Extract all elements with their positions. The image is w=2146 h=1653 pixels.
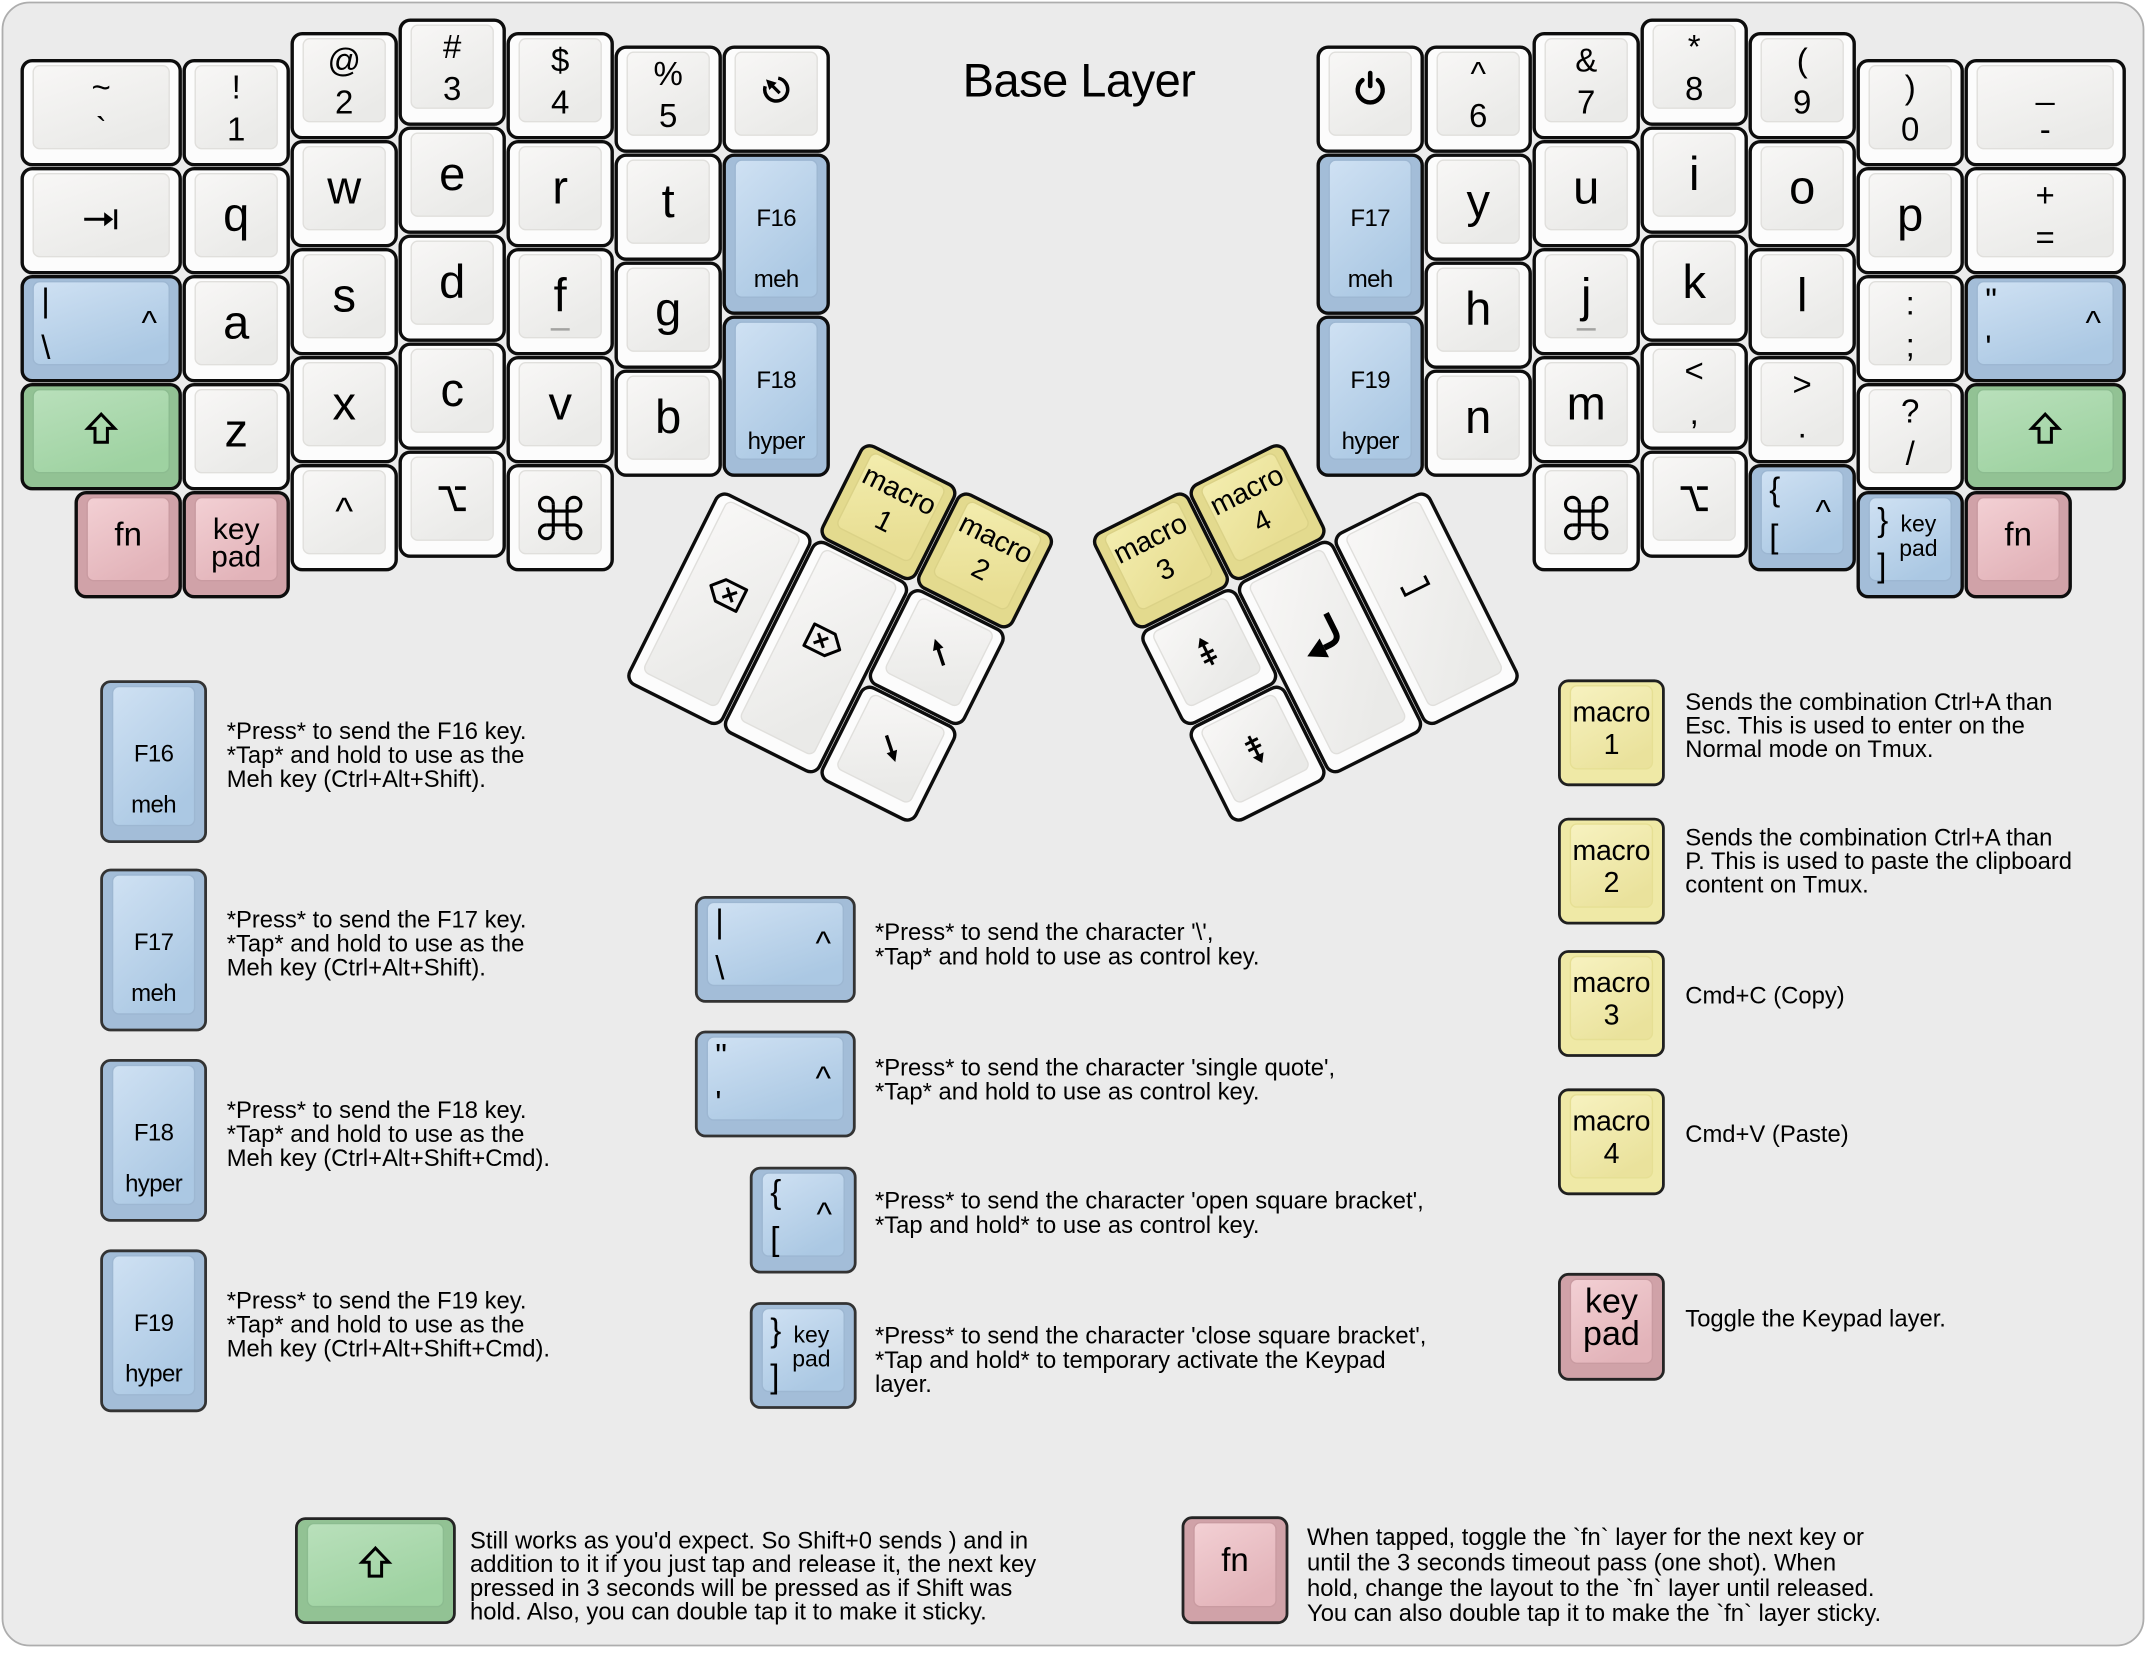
svg-text:): )	[1905, 69, 1916, 106]
svg-text:t: t	[662, 174, 675, 227]
svg-text:F17: F17	[1350, 205, 1390, 232]
svg-text:u: u	[1573, 161, 1599, 214]
svg-text:fn: fn	[2004, 515, 2032, 552]
svg-text:*Tap* and hold to use as the: *Tap* and hold to use as the	[227, 931, 525, 958]
svg-text:1: 1	[227, 110, 245, 147]
svg-text:1: 1	[1604, 729, 1620, 761]
svg-text:]: ]	[770, 1357, 779, 1394]
svg-text:meh: meh	[1348, 266, 1393, 293]
svg-text:[: [	[770, 1220, 779, 1257]
svg-text:Normal mode on Tmux.: Normal mode on Tmux.	[1685, 736, 1933, 763]
svg-text:macro: macro	[1573, 967, 1651, 999]
svg-text:e: e	[439, 147, 465, 200]
svg-text:Meh key (Ctrl+Alt+Shift+Cmd).: Meh key (Ctrl+Alt+Shift+Cmd).	[227, 1335, 550, 1362]
svg-text:=: =	[2036, 218, 2055, 255]
svg-text:d: d	[439, 255, 465, 308]
svg-text:pad: pad	[211, 541, 261, 574]
svg-text:macro: macro	[1573, 835, 1651, 867]
svg-text:4: 4	[551, 83, 569, 120]
svg-text:^: ^	[2085, 304, 2101, 341]
svg-text:meh: meh	[754, 266, 799, 293]
svg-text:^: ^	[1815, 493, 1831, 530]
svg-text:c: c	[440, 363, 464, 416]
svg-text:2: 2	[335, 83, 353, 120]
svg-text:*Press* to send the character: *Press* to send the character 'close squ…	[875, 1322, 1426, 1349]
svg-text:6: 6	[1469, 97, 1487, 134]
svg-text:9: 9	[1793, 83, 1811, 120]
svg-text:>: >	[1793, 366, 1812, 403]
svg-text:&: &	[1575, 42, 1597, 79]
svg-text:pad: pad	[792, 1346, 830, 1372]
svg-text:q: q	[223, 188, 249, 241]
svg-text:": "	[1985, 282, 1997, 319]
svg-text:2: 2	[1604, 867, 1620, 899]
svg-text:F18: F18	[756, 367, 796, 394]
svg-text:F19: F19	[1350, 367, 1390, 394]
svg-text:h: h	[1465, 282, 1491, 335]
svg-text:b: b	[655, 390, 681, 443]
svg-text:key: key	[794, 1322, 830, 1348]
svg-text:*Tap* and hold to use as contr: *Tap* and hold to use as control key.	[875, 943, 1260, 970]
svg-text:hold. Also, you can double tap: hold. Also, you can double tap it to mak…	[470, 1598, 987, 1625]
svg-text:g: g	[655, 282, 681, 335]
svg-text:!: !	[232, 69, 241, 106]
svg-text:F19: F19	[134, 1310, 174, 1337]
svg-text:Base Layer: Base Layer	[963, 54, 1196, 107]
svg-text:|: |	[41, 282, 50, 319]
svg-text:%: %	[654, 55, 683, 92]
svg-text:w: w	[326, 161, 362, 214]
svg-text:*Press* to send the character: *Press* to send the character 'open squa…	[875, 1188, 1424, 1215]
svg-text:|: |	[715, 902, 724, 939]
svg-text:[: [	[1769, 518, 1778, 555]
svg-text:Meh key (Ctrl+Alt+Shift+Cmd).: Meh key (Ctrl+Alt+Shift+Cmd).	[227, 1145, 550, 1172]
svg-text:7: 7	[1577, 83, 1595, 120]
svg-text:#: #	[443, 28, 462, 65]
svg-text:z: z	[224, 404, 248, 457]
svg-text:layer.: layer.	[875, 1371, 932, 1398]
svg-text:': '	[715, 1084, 721, 1121]
svg-text:?: ?	[1901, 393, 1919, 430]
svg-text:F16: F16	[134, 741, 174, 768]
svg-text:a: a	[223, 296, 250, 349]
svg-text:F16: F16	[756, 205, 796, 232]
svg-text:fn: fn	[114, 515, 142, 552]
svg-text:-: -	[2040, 110, 2051, 147]
svg-text:hyper: hyper	[1342, 428, 1400, 455]
svg-text:meh: meh	[131, 792, 176, 819]
svg-text:{: {	[770, 1173, 781, 1210]
svg-text:+: +	[2036, 177, 2055, 214]
svg-text:F18: F18	[134, 1120, 174, 1147]
svg-text:*Press* to send the F17 key.: *Press* to send the F17 key.	[227, 907, 527, 934]
svg-text:s: s	[332, 269, 356, 322]
svg-text:hyper: hyper	[125, 1170, 183, 1197]
svg-text:`: `	[96, 110, 107, 147]
svg-text:*: *	[1688, 28, 1701, 65]
svg-text:*Tap* and hold to use as the: *Tap* and hold to use as the	[227, 742, 525, 769]
svg-text:*Press* to send the F16 key.: *Press* to send the F16 key.	[227, 718, 527, 745]
svg-text:When tapped, toggle the `fn` l: When tapped, toggle the `fn` layer for t…	[1307, 1524, 1864, 1551]
svg-text:macro: macro	[1573, 1106, 1651, 1138]
svg-text:x: x	[332, 377, 356, 430]
svg-text:l: l	[1797, 269, 1807, 322]
svg-text:3: 3	[1604, 1000, 1620, 1032]
svg-text:8: 8	[1685, 70, 1703, 107]
svg-text:i: i	[1689, 147, 1699, 200]
svg-text:}: }	[1877, 501, 1888, 538]
svg-text:*Press* to send the F19 key.: *Press* to send the F19 key.	[227, 1287, 527, 1314]
svg-text:5: 5	[659, 97, 677, 134]
svg-text:\: \	[715, 949, 725, 986]
svg-text:^: ^	[141, 304, 157, 341]
svg-text:fn: fn	[1221, 1541, 1249, 1578]
svg-text:^: ^	[816, 1059, 832, 1096]
svg-text:key: key	[1901, 511, 1937, 537]
svg-text:until the 3 seconds timeout pa: until the 3 seconds timeout pass (one sh…	[1307, 1550, 1836, 1577]
svg-text:*Tap and hold* to temporary ac: *Tap and hold* to temporary activate the…	[875, 1347, 1386, 1374]
svg-text:m: m	[1567, 377, 1606, 430]
svg-text:^: ^	[816, 925, 832, 962]
svg-text:macro: macro	[1573, 697, 1651, 729]
svg-text:Cmd+V (Paste): Cmd+V (Paste)	[1685, 1121, 1848, 1148]
svg-text:3: 3	[443, 70, 461, 107]
svg-text:]: ]	[1877, 547, 1886, 584]
svg-text:k: k	[1682, 255, 1706, 308]
svg-text:pad: pad	[1899, 535, 1937, 561]
svg-text:{: {	[1769, 471, 1780, 508]
svg-text:*Press* to send the F18 key.: *Press* to send the F18 key.	[227, 1097, 527, 1124]
svg-text:pad: pad	[1583, 1315, 1640, 1353]
svg-text:r: r	[552, 161, 568, 214]
svg-text:n: n	[1465, 390, 1491, 443]
svg-text:@: @	[327, 42, 361, 79]
svg-text:Toggle the Keypad layer.: Toggle the Keypad layer.	[1685, 1305, 1946, 1332]
svg-text:Meh key (Ctrl+Alt+Shift).: Meh key (Ctrl+Alt+Shift).	[227, 955, 486, 982]
svg-text:y: y	[1466, 174, 1490, 227]
svg-text:*Press* to send the character: *Press* to send the character 'single qu…	[875, 1054, 1335, 1081]
svg-text:j: j	[1579, 269, 1591, 322]
svg-text:*Press* to send the character: *Press* to send the character '\',	[875, 919, 1213, 946]
svg-text:You can also double tap it to: You can also double tap it to make the `…	[1307, 1600, 1881, 1627]
svg-text:<: <	[1685, 352, 1704, 389]
svg-text:\: \	[41, 329, 51, 366]
svg-text:}: }	[770, 1312, 781, 1349]
svg-text:,: ,	[1690, 394, 1699, 431]
svg-text:4: 4	[1604, 1138, 1620, 1170]
svg-text:Cmd+C (Copy): Cmd+C (Copy)	[1685, 983, 1844, 1010]
svg-text:0: 0	[1901, 110, 1919, 147]
svg-text:v: v	[548, 377, 572, 430]
svg-text:hyper: hyper	[125, 1361, 183, 1388]
svg-text:Meh key (Ctrl+Alt+Shift).: Meh key (Ctrl+Alt+Shift).	[227, 766, 486, 793]
svg-text:": "	[715, 1037, 727, 1074]
svg-text::: :	[1906, 285, 1915, 322]
svg-text:^: ^	[1470, 55, 1486, 92]
svg-text:;: ;	[1906, 326, 1915, 363]
svg-text:*Tap* and hold to use as the: *Tap* and hold to use as the	[227, 1311, 525, 1338]
svg-text:*Tap* and hold to use as the: *Tap* and hold to use as the	[227, 1121, 525, 1148]
svg-text:_: _	[2035, 69, 2055, 106]
svg-text:(: (	[1797, 42, 1808, 79]
svg-text:': '	[1985, 329, 1991, 366]
svg-text:f: f	[554, 269, 568, 322]
svg-text:o: o	[1789, 161, 1815, 214]
svg-text:hold, change the layout to the: hold, change the layout to the `fn` laye…	[1307, 1575, 1875, 1602]
svg-text:$: $	[551, 42, 569, 79]
svg-text:F17: F17	[134, 929, 174, 956]
svg-text:/: /	[1906, 434, 1916, 471]
svg-text:^: ^	[335, 491, 353, 533]
svg-text:p: p	[1897, 188, 1923, 241]
svg-text:~: ~	[92, 69, 111, 106]
svg-text:^: ^	[816, 1195, 832, 1232]
svg-text:meh: meh	[131, 980, 176, 1007]
svg-text:.: .	[1798, 407, 1807, 444]
svg-text:*Tap and hold* to use as contr: *Tap and hold* to use as control key.	[875, 1212, 1260, 1239]
svg-text:hyper: hyper	[748, 428, 806, 455]
svg-text:content on Tmux.: content on Tmux.	[1685, 872, 1868, 899]
svg-text:*Tap* and hold to use as contr: *Tap* and hold to use as control key.	[875, 1079, 1260, 1106]
